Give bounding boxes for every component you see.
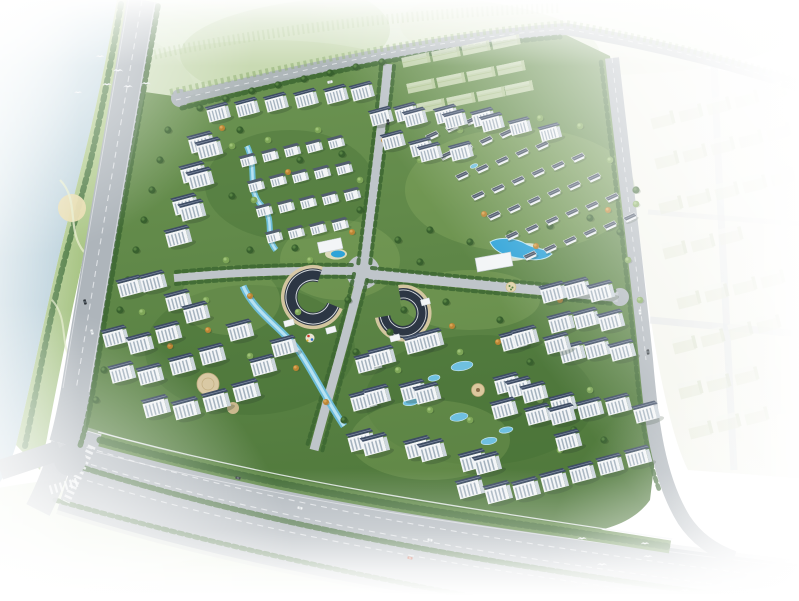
aerial-rendering-canvas — [0, 0, 799, 601]
clubhouse-pool — [331, 251, 345, 258]
gazebo — [476, 388, 480, 392]
car-dark-sprite — [646, 349, 649, 354]
masterplan-rendering — [0, 0, 799, 601]
car-white-sprite — [638, 309, 641, 314]
car-dark-sprite — [386, 119, 389, 124]
